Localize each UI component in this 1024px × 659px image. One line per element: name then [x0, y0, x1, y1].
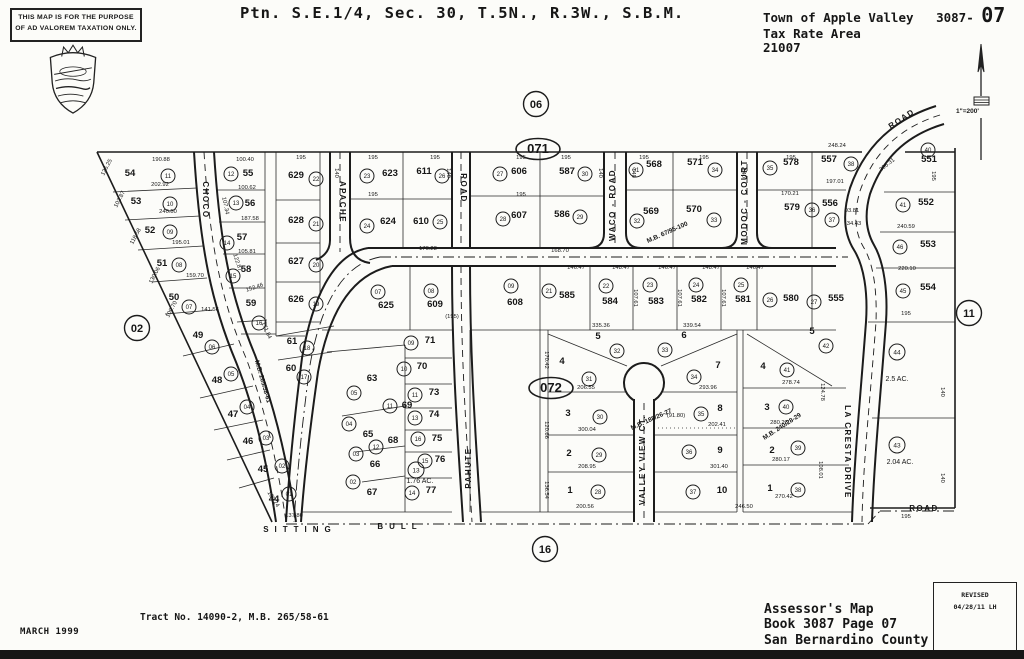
parcel-number: 11: [387, 404, 394, 410]
dimension-label: 195: [901, 311, 911, 317]
parcel-label: 1: [567, 485, 573, 496]
dimension-label: 195: [639, 155, 649, 161]
parcel-label: 71: [425, 335, 436, 346]
parcel-number: 13: [412, 467, 420, 474]
dimension-label: 195: [296, 155, 306, 161]
dimension-label: 195: [901, 514, 911, 520]
parcel-number: 43: [893, 442, 901, 449]
parcel-number: 11: [165, 174, 172, 180]
parcel-label: 552: [918, 197, 934, 208]
dimension-label: 103.87: [113, 190, 127, 208]
parcel-label: 1: [767, 483, 773, 494]
parcel-number: 09: [167, 230, 174, 236]
parcel-number: 06: [209, 345, 216, 351]
road-label: CHOCO: [201, 181, 210, 218]
parcel-number: 38: [848, 162, 855, 168]
dimension-label: 220.10: [898, 266, 916, 272]
parcel-number: 46: [897, 245, 904, 251]
parcel-number: 02: [279, 464, 286, 470]
parcel-number: 25: [437, 220, 444, 226]
parcel-number: 14: [224, 241, 231, 247]
parcel-number: 36: [686, 450, 693, 456]
parcel-number: 29: [596, 453, 603, 459]
assessor-line: San Bernardino County: [764, 633, 928, 648]
assessor-map-page: THIS MAP IS FOR THE PURPOSE OF AD VALORE…: [0, 0, 1024, 659]
dimension-label: 120.66: [543, 421, 549, 439]
revised-box: REVISED 04/28/11 LH: [933, 582, 1017, 657]
parcel-label: 74: [429, 409, 440, 420]
parcel-number: 05: [351, 391, 358, 397]
parcel-label: 77: [426, 485, 437, 496]
road-label: APACHE: [338, 181, 347, 223]
parcel-number: 15: [422, 459, 429, 465]
parcel-number: 33: [711, 218, 718, 224]
parcel-number: 10: [401, 367, 408, 373]
dimension-label: 195: [368, 192, 378, 198]
dimension-label: (195): [445, 314, 459, 320]
parcel-number: 30: [597, 415, 604, 421]
parcel-label: 554: [920, 282, 937, 293]
parcel-number: 24: [693, 283, 700, 289]
parcel-label: 55: [243, 168, 254, 179]
parcel-number: 33: [662, 348, 669, 354]
parcel-number: 31: [586, 377, 593, 383]
dimension-label: 152.46: [245, 282, 264, 293]
dimension-label: 240.50: [159, 209, 177, 215]
dimension-label: 146.47: [658, 265, 676, 271]
parcel-number: 21: [313, 222, 320, 228]
parcel-label: 586: [554, 209, 570, 220]
parcel-number: 45: [900, 289, 907, 295]
parcel-label: 69: [402, 400, 413, 411]
parcel-number: 19: [313, 302, 320, 308]
dimension-label: 159.70: [186, 273, 204, 279]
parcel-label: 4: [760, 361, 766, 372]
parcel-label: 585: [559, 290, 576, 301]
dimension-label: 202.92: [151, 182, 169, 188]
dimension-label: 107.61: [632, 289, 638, 307]
parcel-label: 569: [643, 206, 659, 217]
parcel-label: 606: [511, 166, 527, 177]
dimension-label: 140: [333, 168, 339, 178]
dimension-label: 124.78: [819, 383, 825, 401]
parcel-number: 07: [375, 290, 382, 296]
parcel-number: 24: [364, 224, 371, 230]
dimension-label: 278.74: [782, 380, 801, 386]
dimension-label: 107.61: [676, 289, 682, 307]
dimension-label: 190.88: [152, 157, 170, 163]
parcel-number: 21: [546, 289, 553, 295]
parcel-number: 13: [233, 201, 240, 207]
parcel-number: 01: [286, 492, 293, 498]
dimension-label: 146.47: [746, 265, 764, 271]
parcel-label: 609: [427, 299, 443, 310]
dimension-label: 301.40: [710, 464, 728, 470]
parcel-label: 570: [686, 204, 702, 215]
parcel-label: 8: [717, 403, 722, 414]
dimension-label: 280.17: [772, 457, 790, 463]
parcel-label: 2: [566, 448, 571, 459]
dimension-label: 100.62: [238, 185, 256, 191]
dimension-label: 195: [430, 155, 440, 161]
parcel-label: 59: [246, 298, 257, 309]
parcel-number: 23: [647, 283, 654, 289]
parcel-label: 611: [416, 166, 432, 177]
area-label: 1.76 AC.: [407, 478, 434, 485]
parcel-number: 34: [712, 168, 719, 174]
parcel-label: 76: [435, 454, 446, 465]
dimension-label: 148.47: [612, 265, 630, 271]
parcel-label: 70: [417, 361, 428, 372]
parcel-label: 607: [511, 210, 527, 221]
parcel-label: 57: [237, 232, 248, 243]
dimension-label: 170.21: [781, 191, 799, 197]
revised-label: REVISED: [934, 590, 1016, 602]
parcel-label: 582: [691, 294, 707, 305]
parcel-number: 37: [690, 490, 697, 496]
section-reference-number: 11: [963, 308, 975, 320]
parcel-label: 61: [287, 336, 298, 347]
parcel-label: 608: [507, 297, 523, 308]
mapbook-note: M.B. 240/28-29: [762, 412, 803, 442]
dimension-label: 107.34: [220, 196, 230, 215]
dimension-label: 293.96: [699, 385, 717, 391]
parcel-number: 32: [614, 349, 621, 355]
parcel-label: 48: [212, 375, 223, 386]
parcel-label: 623: [382, 168, 398, 179]
parcel-label: 60: [286, 363, 297, 374]
parcel-number: 22: [313, 177, 320, 183]
road-label: BULL: [377, 522, 422, 531]
parcel-number: 40: [783, 405, 790, 411]
parcel-number: 30: [582, 172, 589, 178]
dimension-label: 195.01: [172, 240, 190, 246]
parcel-number: 41: [900, 203, 907, 209]
parcel-label: 2: [769, 445, 774, 456]
dimension-label: 170.42: [543, 351, 549, 369]
dimension-label: 108.01: [817, 461, 823, 479]
dimension-label: 171.84: [260, 321, 273, 340]
parcel-label: 626: [288, 294, 304, 305]
block-number: 072: [540, 380, 562, 395]
parcel-label: 624: [380, 216, 397, 227]
parcel-label: 628: [288, 215, 304, 226]
dimension-label: 195: [516, 192, 526, 198]
assessor-line: Book 3087 Page 07: [764, 617, 928, 632]
road-label: PAHUTE: [464, 447, 473, 488]
parcel-number: 16: [415, 437, 422, 443]
parcel-label: 56: [245, 198, 256, 209]
parcel-number: 38: [795, 488, 802, 494]
parcel-label: 75: [432, 433, 443, 444]
parcel-label: 555: [828, 293, 845, 304]
dimension-label: 195: [786, 155, 796, 161]
parcel-number: 28: [500, 217, 507, 223]
parcel-label: 9: [717, 445, 722, 456]
revised-value: 04/28/11 LH: [934, 602, 1016, 614]
bottom-bar: [0, 650, 1024, 659]
area-label: 2.5 AC.: [886, 376, 909, 383]
mapbook-note: M.B. 265/58-61: [253, 359, 272, 404]
dimension-label: 195: [368, 155, 378, 161]
parcel-number: 40: [925, 148, 932, 154]
tract-references: Tract No. 14090-2, M.B. 265/58-61 Ptn. T…: [140, 584, 346, 659]
dimension-label: 100.40: [236, 157, 254, 163]
dimension-label: 246.50: [735, 504, 753, 510]
parcel-label: 556: [822, 198, 838, 209]
parcel-label: 49: [193, 330, 204, 341]
parcel-number: 12: [373, 445, 380, 451]
parcel-number: 39: [795, 446, 802, 452]
parcel-number: 37: [829, 218, 836, 224]
dimension-label: 187.58: [241, 216, 259, 222]
parcel-number: 13: [412, 416, 419, 422]
parcel-number: 03: [263, 436, 270, 442]
parcel-number: 02: [350, 480, 357, 486]
parcel-label: 6: [681, 330, 686, 341]
dimension-label: 140: [630, 168, 636, 178]
parcel-number: 07: [186, 305, 193, 311]
assessor-line: Assessor's Map: [764, 602, 928, 617]
parcel-number: 35: [767, 166, 774, 172]
parcel-label: 3: [565, 408, 570, 419]
dimension-label: 300.04: [578, 427, 597, 433]
parcel-label: 52: [145, 225, 156, 236]
parcel-label: 4: [559, 356, 565, 367]
parcel-number: 22: [603, 284, 610, 290]
parcel-label: 627: [288, 256, 304, 267]
dimension-label: 208.95: [578, 464, 596, 470]
parcel-number: 35: [698, 412, 705, 418]
parcel-label: 610: [413, 216, 429, 227]
dimension-label: 105.81: [238, 249, 256, 255]
parcel-label: 10: [717, 485, 728, 496]
dimension-label: 195: [930, 171, 936, 181]
dimension-label: 240.59: [897, 224, 915, 230]
dimension-label: 168.70: [551, 248, 569, 254]
parcel-number: 26: [439, 174, 446, 180]
assessor-map-block: Assessor's Map Book 3087 Page 07 San Ber…: [764, 602, 928, 648]
road-label: ROAD: [459, 173, 468, 203]
parcel-number: 15: [230, 274, 237, 280]
parcel-label: 587: [559, 166, 575, 177]
parcel-label: 65: [363, 429, 374, 440]
section-reference-number: 02: [131, 323, 143, 335]
parcel-number: 08: [176, 263, 183, 269]
parcel-label: 63: [367, 373, 378, 384]
parcel-number: 03: [353, 452, 360, 458]
parcel-label: 553: [920, 239, 936, 250]
parcel-label: 67: [367, 487, 378, 498]
parcel-label: 68: [388, 435, 399, 446]
parcel-number: 27: [497, 172, 504, 178]
parcel-label: 54: [125, 168, 136, 179]
road-label: LA CRESTA DRIVE: [843, 405, 852, 499]
mapbook-note: M.B. 67/95-100: [646, 220, 689, 244]
parcel-label: 73: [429, 387, 440, 398]
dimension-label: 206.55: [577, 385, 595, 391]
parcel-number: 34: [691, 375, 698, 381]
dimension-label: 202.41: [708, 422, 726, 428]
dimension-label: 197.01: [826, 179, 844, 185]
dimension-label: 148.47: [702, 265, 720, 271]
dimension-label: 146.47: [567, 265, 585, 271]
parcel-label: 7: [715, 360, 720, 371]
parcel-number: 04: [244, 405, 251, 411]
parcel-number: 41: [784, 368, 791, 374]
parcel-number: 04: [346, 422, 353, 428]
parcel-label: 66: [370, 459, 381, 470]
parcel-number: 18: [304, 346, 311, 352]
parcel-label: 629: [288, 170, 304, 181]
road-label: SITTING: [263, 525, 337, 534]
parcel-label: 53: [131, 196, 142, 207]
parcel-label: 625: [378, 300, 395, 311]
dimension-label: 195: [561, 155, 571, 161]
dimension-label: 339.54: [683, 323, 702, 329]
parcel-number: 36: [809, 208, 816, 214]
dimension-label: 335.36: [592, 323, 610, 329]
parcel-label: 5: [809, 326, 815, 337]
parcel-number: 28: [595, 490, 602, 496]
dimension-label: 200.56: [576, 504, 594, 510]
map-date: MARCH 1999: [20, 627, 79, 637]
area-label: 2.04 AC.: [887, 459, 914, 466]
parcel-number: 27: [811, 300, 818, 306]
dimension-label: 170.23: [419, 246, 437, 252]
dimension-label: 136.54: [543, 481, 549, 500]
parcel-number: 10: [167, 202, 174, 208]
road-label: ROAD: [909, 504, 939, 513]
parcel-label: 557: [821, 154, 837, 165]
parcel-label: 583: [648, 296, 664, 307]
parcel-number: 32: [634, 219, 641, 225]
parcel-label: 45: [258, 464, 269, 475]
parcel-label: 5: [595, 331, 601, 342]
parcel-number: 11: [412, 393, 419, 399]
dimension-label: 140: [445, 168, 451, 178]
parcel-number: 44: [893, 349, 901, 356]
tract-line: Tract No. 14090-2, M.B. 265/58-61: [140, 611, 346, 624]
road-label: WACO - ROAD: [608, 169, 617, 241]
dimension-label: 195: [699, 155, 709, 161]
parcel-label: 46: [243, 436, 254, 447]
dimension-label: 34.43: [847, 221, 862, 227]
dimension-label: 140: [939, 473, 945, 483]
parcel-label: 579: [784, 202, 800, 213]
dimension-label: 107.61: [720, 289, 726, 307]
section-reference-number: 06: [530, 99, 542, 111]
parcel-number: 29: [577, 215, 584, 221]
parcel-label: 47: [228, 409, 239, 420]
parcel-number: 14: [409, 491, 416, 497]
parcel-number: 20: [313, 263, 320, 269]
parcel-label: 580: [783, 293, 799, 304]
map-labels: 5411531052095108500749064805470446034502…: [100, 92, 981, 562]
dimension-label: 270.42: [775, 494, 793, 500]
parcel-number: 05: [228, 372, 235, 378]
parcel-number: 42: [823, 344, 830, 350]
parcel-number: 09: [508, 284, 515, 290]
parcel-label: 581: [735, 294, 752, 305]
dimension-label: 93.81: [845, 208, 860, 214]
road-label: MODOC - COURT: [740, 159, 749, 245]
dimension-label: 137.80: [285, 513, 303, 519]
dimension-label: 140: [597, 168, 603, 178]
parcel-number: 09: [408, 341, 415, 347]
parcel-label: 584: [602, 296, 619, 307]
parcel-number: 26: [767, 298, 774, 304]
section-reference-number: 16: [539, 544, 551, 556]
dimension-label: 109.70: [165, 300, 179, 318]
parcel-number: 23: [364, 174, 371, 180]
block-number: 071: [527, 141, 549, 156]
parcel-number: 25: [738, 283, 745, 289]
parcel-number: 17: [301, 375, 308, 381]
parcel-label: 3: [764, 402, 769, 413]
dimension-label: 140: [939, 387, 945, 397]
parcel-number: 08: [428, 289, 435, 295]
map-canvas: 5411531052095108500749064805470446034502…: [0, 0, 1024, 659]
dimension-label: 248.24: [828, 143, 847, 149]
parcel-number: 12: [228, 172, 235, 178]
dimension-label: 141.56: [201, 307, 219, 313]
